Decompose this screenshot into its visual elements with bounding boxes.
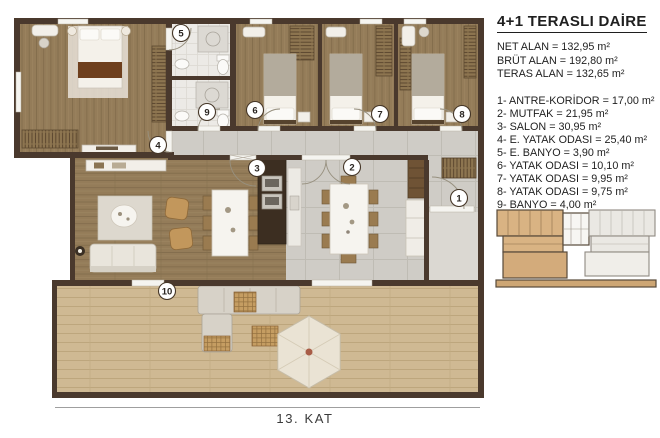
key-plan (494, 206, 660, 290)
nightstand (298, 112, 310, 122)
ac-unit-icon (243, 27, 265, 37)
sink (175, 59, 189, 69)
coffee-table (111, 205, 137, 227)
room-number-label: 6 (252, 105, 257, 116)
wardrobe (152, 46, 166, 122)
room-number-label: 3 (254, 163, 259, 174)
ac-unit-icon (32, 25, 58, 36)
cabinet-stack (406, 200, 426, 256)
room-number-label: 5 (178, 28, 184, 39)
key-plan-highlight-unit (497, 210, 567, 278)
text-line: 4- E. YATAK ODASI = 25,40 m² (497, 134, 660, 147)
ac-unit-icon (402, 26, 415, 46)
shower (198, 26, 228, 52)
room-legend: 1- ANTRE-KORİDOR = 17,00 m²2- MUTFAK = 2… (497, 95, 660, 213)
floor-landing (426, 212, 480, 282)
key-plan-core (563, 213, 589, 245)
room-number-label: 8 (459, 109, 464, 120)
floor-plan: 12345678910 (0, 0, 490, 404)
sink (175, 111, 189, 121)
floor-label: 13. KAT (185, 411, 425, 426)
key-plan-lower-terrace (496, 280, 656, 287)
floor-label-divider (55, 407, 480, 408)
unit-title: 4+1 TERASLI DAİRE (497, 13, 647, 33)
text-line: 3- SALON = 30,95 m² (497, 121, 660, 134)
title-block: 4+1 TERASLI DAİRE NET ALAN = 132,95 m²BR… (497, 13, 660, 212)
side-table (234, 292, 256, 312)
text-line: TERAS ALAN = 132,65 m² (497, 68, 660, 82)
area-summary: NET ALAN = 132,95 m²BRÜT ALAN = 192,80 m… (497, 41, 660, 82)
room-number-label: 4 (155, 140, 161, 151)
shower (196, 82, 228, 108)
toilet (218, 60, 229, 75)
floor-plan-page: 12345678910 4+1 TERASLI DAİRE NET ALAN =… (0, 0, 660, 438)
room-number-label: 9 (204, 107, 209, 118)
room-number-label: 1 (456, 193, 462, 204)
room-number-label: 10 (162, 286, 173, 297)
floor-transition (265, 244, 286, 284)
text-line: 7- YATAK ODASI = 9,95 m² (497, 173, 660, 186)
wardrobe (22, 130, 78, 148)
armchair (165, 197, 190, 221)
text-line: 9- BANYO = 4,00 m² (497, 199, 660, 212)
text-line: 5- E. BANYO = 3,90 m² (497, 147, 660, 160)
text-line: NET ALAN = 132,95 m² (497, 41, 660, 55)
kitchen-sink (290, 196, 299, 210)
armchair (169, 227, 193, 251)
wardrobe (376, 26, 392, 76)
text-line: 6- YATAK ODASI = 10,10 m² (497, 160, 660, 173)
wardrobe (464, 26, 476, 78)
text-line: 1- ANTRE-KORİDOR = 17,00 m² (497, 95, 660, 108)
text-line: 2- MUTFAK = 21,95 m² (497, 108, 660, 121)
kitchen-table (330, 184, 368, 254)
text-line: BRÜT ALAN = 192,80 m² (497, 55, 660, 69)
entry-cabinet (442, 158, 476, 178)
ac-unit-icon (326, 27, 346, 37)
key-plan-other-unit (585, 210, 655, 276)
text-line: 8- YATAK ODASI = 9,75 m² (497, 186, 660, 199)
outdoor-coffee-table (252, 326, 278, 346)
dining-table (212, 190, 248, 256)
room-number-label: 2 (349, 162, 354, 173)
room-number-label: 7 (377, 109, 382, 120)
